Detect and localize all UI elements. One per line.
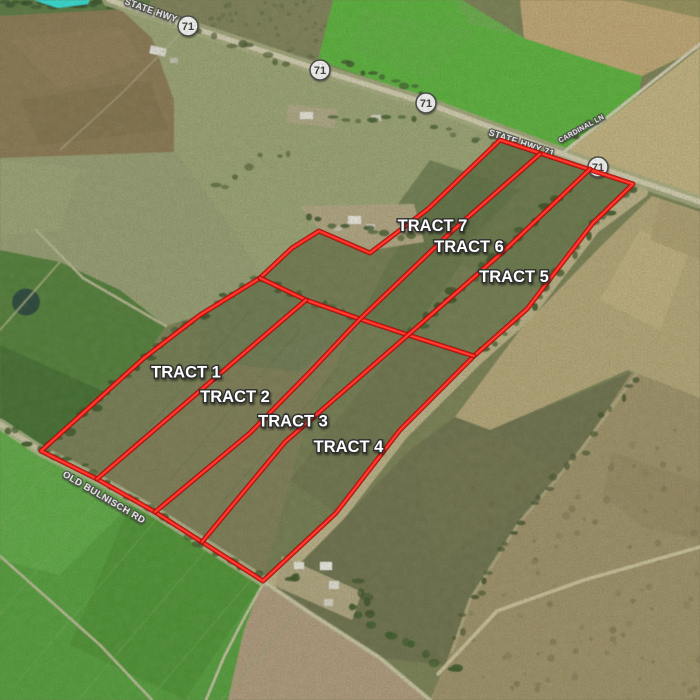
svg-text:TRACT 4: TRACT 4 <box>314 438 384 456</box>
svg-text:TRACT 3: TRACT 3 <box>258 412 328 430</box>
svg-text:TRACT 6: TRACT 6 <box>434 238 504 256</box>
svg-text:TRACT 7: TRACT 7 <box>398 217 468 235</box>
svg-text:TRACT 5: TRACT 5 <box>479 268 549 286</box>
svg-text:TRACT 1: TRACT 1 <box>151 363 221 381</box>
svg-text:TRACT 2: TRACT 2 <box>200 388 270 406</box>
